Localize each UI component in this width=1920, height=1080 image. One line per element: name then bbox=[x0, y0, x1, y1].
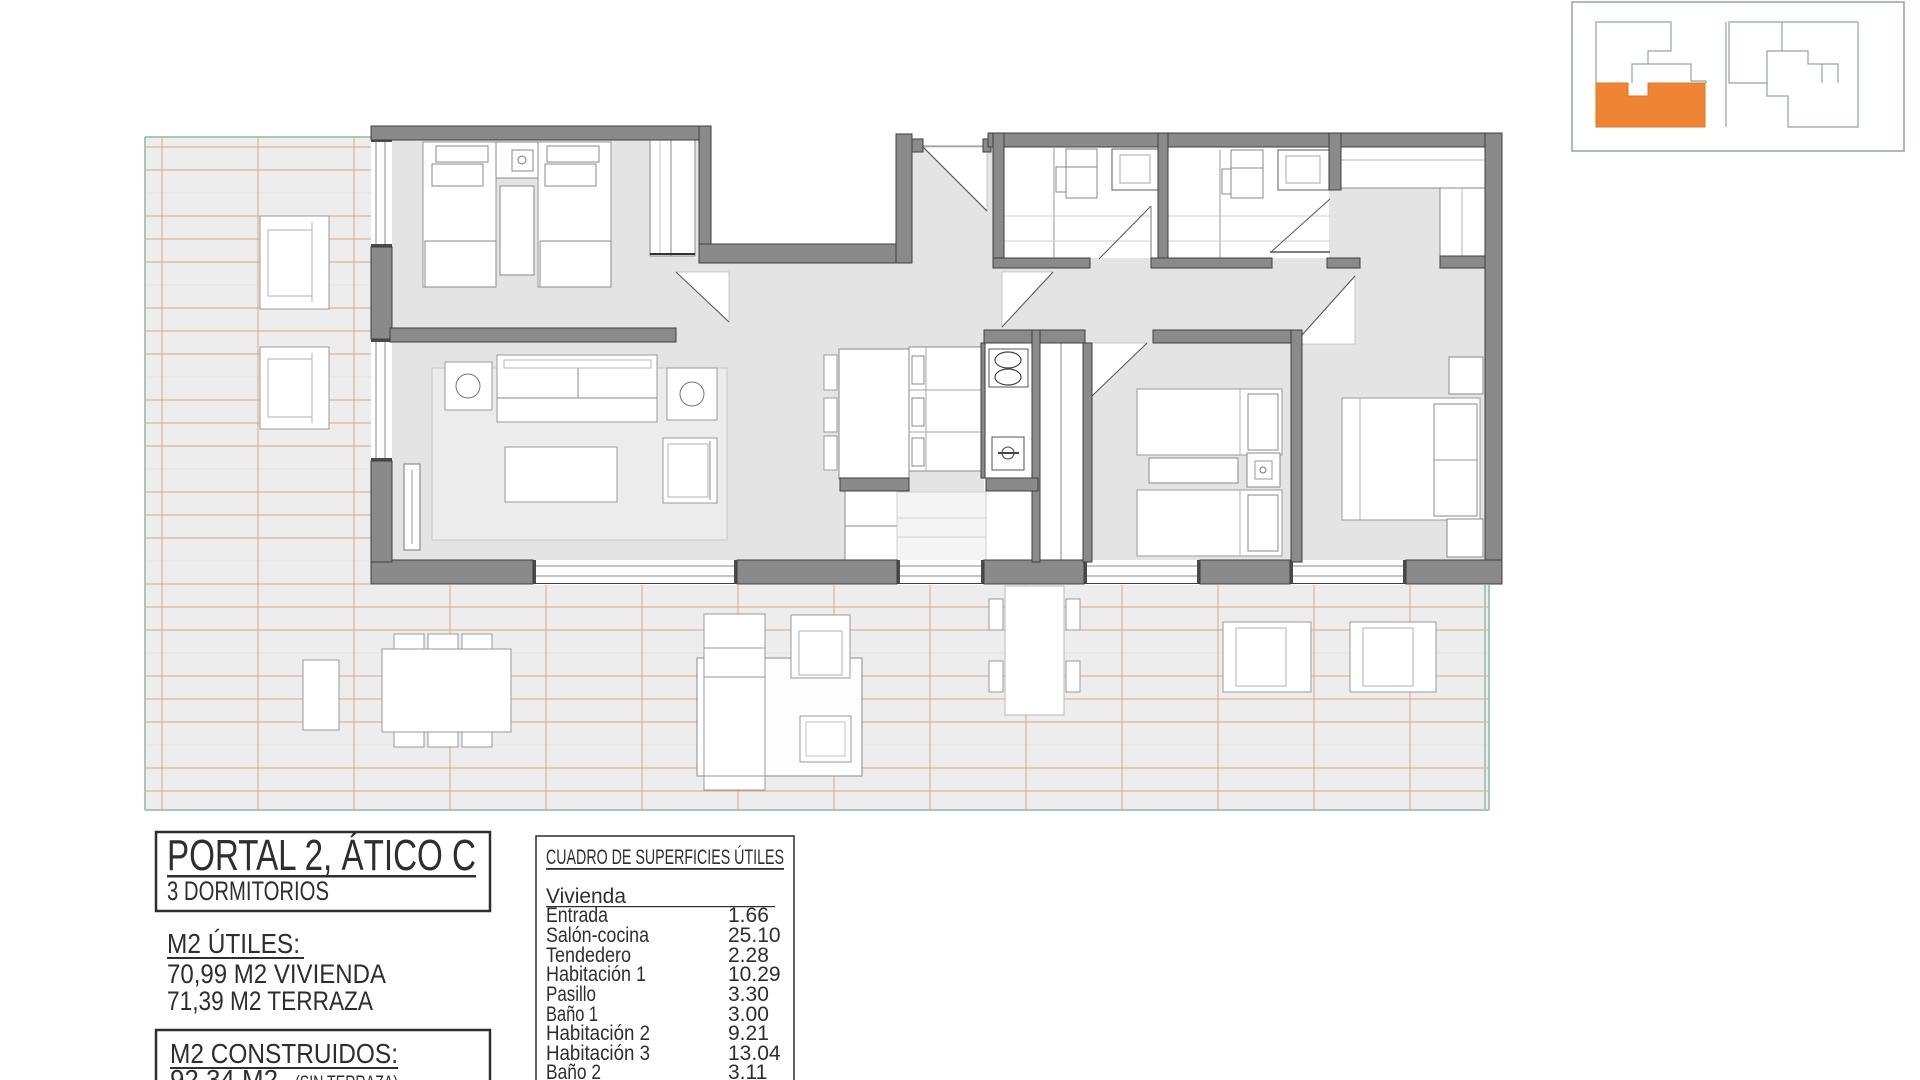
svg-text:(SIN TERRAZA): (SIN TERRAZA) bbox=[295, 1073, 398, 1080]
svg-text:92,34 M2: 92,34 M2 bbox=[170, 1064, 278, 1080]
svg-text:M2 ÚTILES:: M2 ÚTILES: bbox=[167, 928, 300, 959]
svg-text:71,39 M2 TERRAZA: 71,39 M2 TERRAZA bbox=[167, 986, 373, 1016]
svg-text:3.11: 3.11 bbox=[728, 1061, 767, 1080]
svg-text:CUADRO DE SUPERFICIES ÚTILES: CUADRO DE SUPERFICIES ÚTILES bbox=[546, 846, 784, 869]
svg-text:Baño 2: Baño 2 bbox=[546, 1061, 601, 1080]
svg-text:70,99 M2 VIVIENDA: 70,99 M2 VIVIENDA bbox=[167, 959, 386, 989]
svg-text:PORTAL 2, ÁTICO C: PORTAL 2, ÁTICO C bbox=[167, 831, 476, 880]
svg-text:3 DORMITORIOS: 3 DORMITORIOS bbox=[167, 876, 329, 906]
